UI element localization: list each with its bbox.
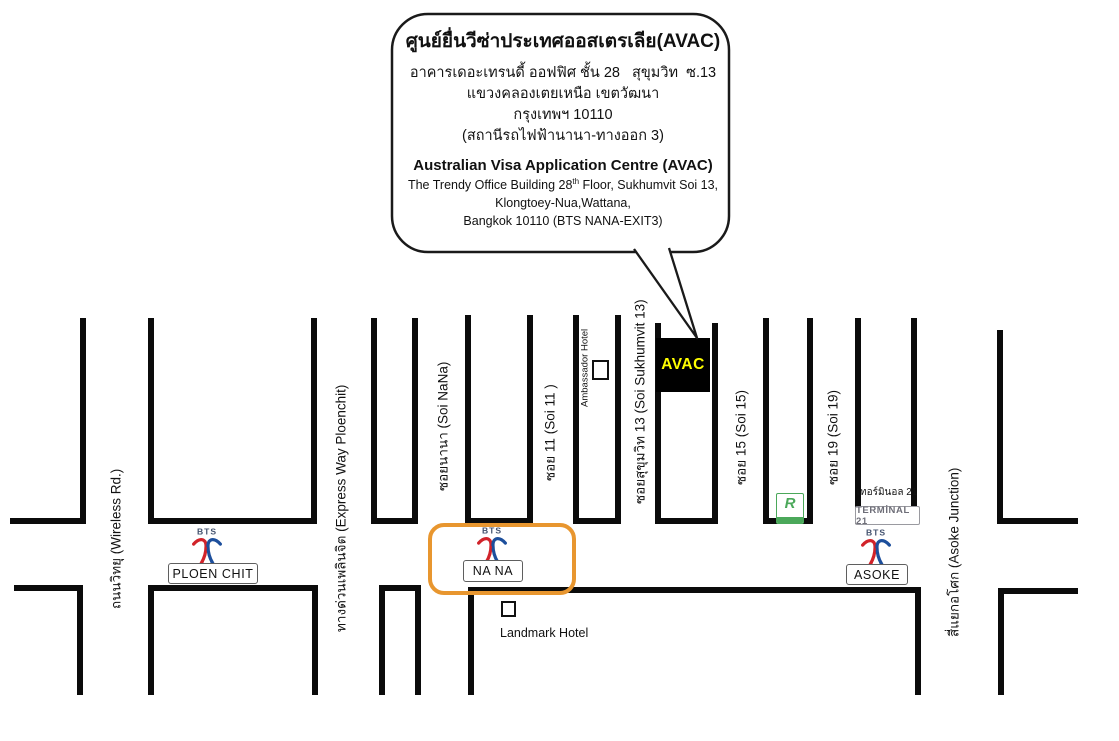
terminal21-logo: TERMİNAL 21 xyxy=(855,506,920,525)
road-edge xyxy=(807,318,813,524)
road-edge xyxy=(712,323,718,524)
callout-thai-line: อาคารเดอะเทรนดี้ ออฟฟิศ ชั้น 28 สุขุมวิท… xyxy=(398,63,728,84)
road-edge xyxy=(371,318,377,524)
callout-thai-line: แขวงคลองเตยเหนือ เขตวัฒนา xyxy=(398,84,728,105)
bts-logo-nana-icon: BTS xyxy=(473,525,511,565)
road-edge xyxy=(915,587,921,695)
address-line1-pre: The Trendy Office Building 28 xyxy=(408,178,572,192)
road-edge xyxy=(415,585,421,695)
ambassador-hotel-marker xyxy=(592,360,609,380)
road-edge xyxy=(148,585,154,695)
callout-thai-line: กรุงเทพฯ 10110 xyxy=(398,105,728,126)
station-label-na-na: NA NA xyxy=(463,560,523,582)
avac-label: AVAC xyxy=(661,356,705,374)
avac-location-map: ถนนวิทยุ (Wireless Rd.) ทางด่วนเพลินจิต … xyxy=(0,0,1119,741)
bts-logo-text: BTS xyxy=(866,528,886,538)
bts-logo-asoke-icon: BTS xyxy=(857,527,895,567)
station-label-asoke: ASOKE xyxy=(846,564,908,585)
road-edge xyxy=(148,318,154,524)
station-label-ploen-chit: PLOEN CHIT xyxy=(168,563,258,584)
address-line1-post: Floor, Sukhumvit Soi 13, xyxy=(579,178,718,192)
road-edge xyxy=(997,330,1003,524)
bts-logo-text: BTS xyxy=(482,526,502,536)
road-edge xyxy=(655,518,718,524)
landmark-hotel-marker xyxy=(501,601,516,617)
callout-content: ศูนย์ยื่นวีซ่าประเทศออสเตรเลีย(AVAC) อาค… xyxy=(398,26,728,230)
street-label-asoke-junction: สี่แยกอโศก (Asoke Junction) xyxy=(943,451,965,653)
callout-thai-line: (สถานีรถไฟฟ้านานา-ทางออก 3) xyxy=(398,126,728,147)
callout-thai-title: ศูนย์ยื่นวีซ่าประเทศออสเตรเลีย(AVAC) xyxy=(398,26,728,56)
road-edge xyxy=(371,518,418,524)
bts-logo-text: BTS xyxy=(197,527,217,537)
road-edge xyxy=(312,585,318,695)
road-edge xyxy=(763,318,769,524)
callout-english-address-line1: The Trendy Office Building 28th Floor, S… xyxy=(398,176,728,195)
robinson-letter: R xyxy=(777,494,803,514)
road-edge xyxy=(77,585,83,695)
robinson-logo-icon: R xyxy=(776,493,804,524)
road-edge xyxy=(14,585,83,591)
road-edge xyxy=(80,318,86,524)
callout-bubble-tail xyxy=(634,248,697,338)
bts-logo-ploenchit-icon: BTS xyxy=(188,526,226,566)
road-edge xyxy=(10,518,86,524)
terminal21-thai-label: เทอร์มินอล 21 xyxy=(853,485,921,500)
landmark-hotel-label: Landmark Hotel xyxy=(500,626,588,640)
callout-english-address-line3: Bangkok 10110 (BTS NANA-EXIT3) xyxy=(398,213,728,231)
road-edge xyxy=(998,588,1078,594)
road-edge xyxy=(148,585,318,591)
road-edge xyxy=(148,518,317,524)
road-edge xyxy=(998,588,1004,695)
road-edge xyxy=(573,518,621,524)
road-edge xyxy=(379,585,385,695)
street-label-soi-15: ซอย 15 (Soi 15) xyxy=(730,381,752,495)
street-label-wireless-road: ถนนวิทยุ (Wireless Rd.) xyxy=(105,456,127,622)
street-label-expressway-ploenchit: ทางด่วนเพลินจิต (Express Way Ploenchit) xyxy=(330,374,352,642)
callout-english-address-line2: Klongtoey-Nua,Wattana, xyxy=(398,195,728,213)
road-edge xyxy=(468,587,474,695)
street-label-soi-11: ซอย 11 (Soi 11 ) xyxy=(539,374,561,492)
robinson-logo-bar xyxy=(777,517,803,523)
street-label-soi-nana: ซอยนานา (Soi NaNa) xyxy=(432,352,454,500)
road-edge xyxy=(311,318,317,524)
road-edge xyxy=(997,518,1078,524)
callout-english-title: Australian Visa Application Centre (AVAC… xyxy=(398,157,728,174)
street-label-soi-19: ซอย 19 (Soi 19) xyxy=(822,381,844,495)
